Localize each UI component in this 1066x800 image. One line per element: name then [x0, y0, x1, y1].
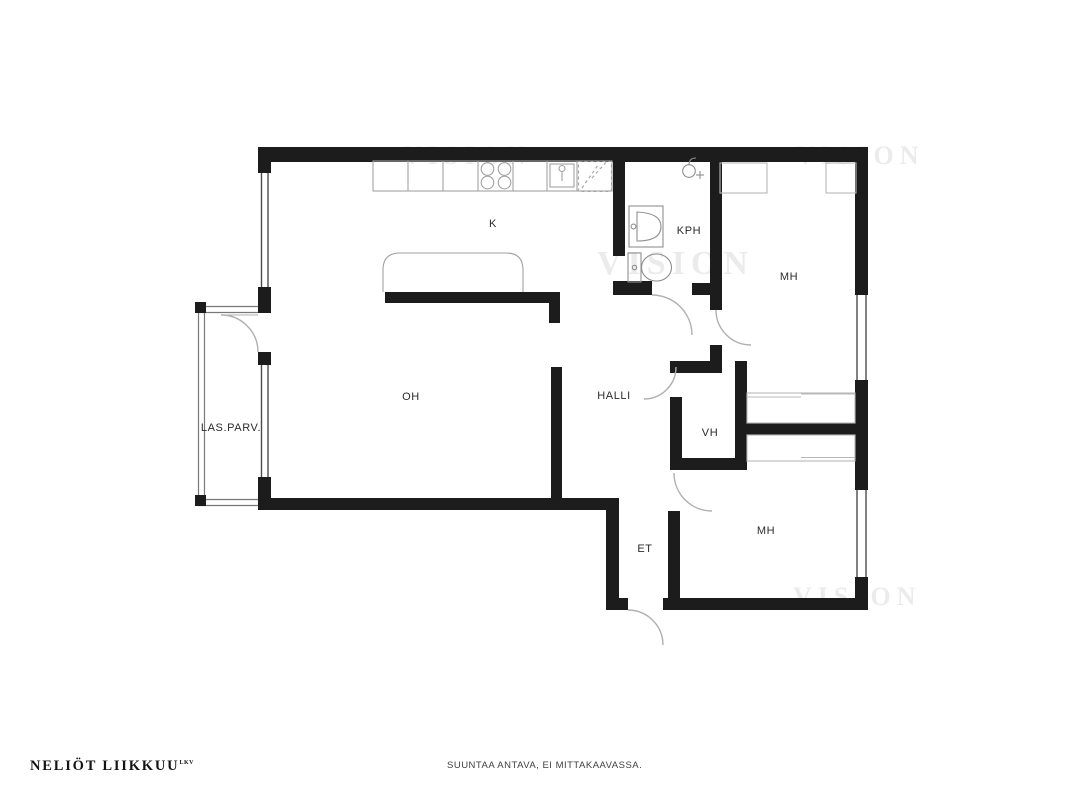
bedroom-bottom-door-arc: [674, 473, 712, 511]
room-label-bedroom-top: MH: [780, 271, 798, 283]
room-label-living-room: OH: [402, 391, 420, 403]
windows: [262, 173, 867, 577]
room-label-glazed-balcony: LAS.PARV.: [201, 422, 261, 434]
floorplan-page: { "branding": { "logo": "NELIÖT LIIKKUU"…: [0, 0, 1066, 800]
floorplan: VISION VISION VISION VISION: [0, 0, 1066, 800]
agency-logo: NELIÖT LIIKKUULKV: [30, 758, 194, 775]
bathroom-sink-icon: [629, 206, 663, 247]
agency-logo-superscript: LKV: [179, 760, 194, 766]
room-label-entry: ET: [637, 543, 652, 555]
bedroom-top-door-arc: [716, 310, 751, 345]
refrigerator-icon: [579, 160, 612, 192]
agency-logo-text: NELIÖT LIIKKUU: [30, 758, 179, 774]
balcony-glass-walls: [198, 306, 258, 506]
balcony-door-arc: [221, 315, 258, 352]
bathroom-door-arc: [652, 295, 692, 335]
disclaimer-text: SUUNTAA ANTAVA, EI MITTAKAAVASSA.: [447, 760, 642, 771]
kitchen-island: [383, 253, 523, 292]
room-label-kitchen: K: [489, 218, 497, 230]
toilet-icon: [628, 253, 672, 282]
room-label-bedroom-bottom: MH: [757, 525, 775, 537]
wardrobe-top-right: [826, 163, 856, 193]
stove-icon: [481, 163, 511, 189]
entrance-door-arc: [628, 610, 663, 645]
room-label-bathroom: KPH: [677, 225, 701, 237]
walls: [258, 147, 868, 610]
wardrobe-top-left: [720, 163, 767, 193]
room-label-hall: HALLI: [597, 390, 631, 402]
kitchen-sink-icon: [550, 164, 574, 187]
floorplan-svg: [0, 0, 1066, 800]
room-label-closet: VH: [702, 427, 718, 439]
